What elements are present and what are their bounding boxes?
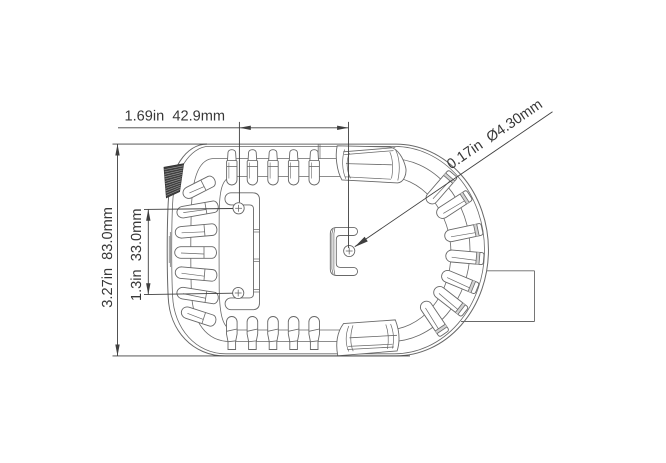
svg-text:3.27in 83.0mm: 3.27in 83.0mm [100, 207, 116, 308]
svg-text:1.3in 33.0mm: 1.3in 33.0mm [129, 209, 145, 301]
svg-text:1.69in 42.9mm: 1.69in 42.9mm [125, 109, 226, 125]
